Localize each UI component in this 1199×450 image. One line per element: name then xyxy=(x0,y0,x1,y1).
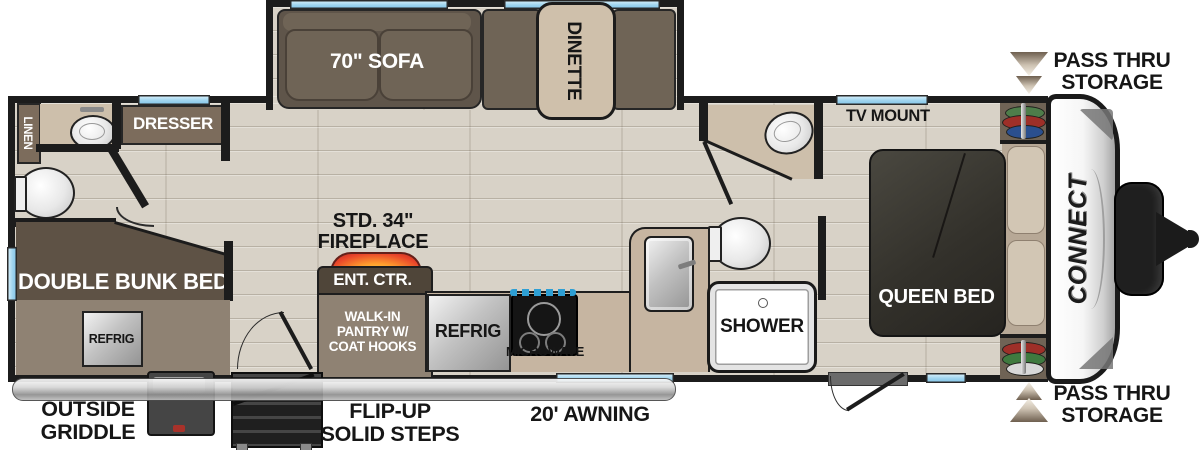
rear-wall-window xyxy=(7,247,17,301)
rear-bath-sink-bowl xyxy=(79,123,105,140)
hitch-coupler xyxy=(1188,230,1199,248)
pass-thru-storage-bottom-bay xyxy=(1000,334,1048,379)
linen-cabinet: LINEN xyxy=(17,103,41,164)
pass-thru-arrow-down-large xyxy=(1010,52,1048,76)
outside-griddle-line2: GRIDDLE xyxy=(41,420,136,444)
dresser-window xyxy=(138,95,210,105)
outside-griddle-line1: OUTSIDE xyxy=(41,397,134,421)
bath-sink-bowl xyxy=(771,117,804,145)
dresser-label: DRESSER xyxy=(123,115,223,133)
pass-thru-arrow-down-small xyxy=(1016,76,1042,94)
pantry-label-line1: WALK-IN xyxy=(345,309,401,324)
wall-rear-bath-vertical xyxy=(112,103,121,149)
flip-up-steps-label: FLIP-UP SOLID STEPS xyxy=(318,400,462,446)
bunk-refrig: REFRIG xyxy=(82,311,143,367)
ent-ctr-label: ENT. CTR. xyxy=(319,271,426,289)
dinette-table: DINETTE xyxy=(536,2,616,120)
bed-fold-line xyxy=(932,153,966,258)
linen-label: LINEN xyxy=(21,105,33,161)
cap-swoosh-bottom xyxy=(1079,337,1113,369)
pass-thru-top-line1: PASS THRU xyxy=(1053,49,1170,72)
pass-thru-bottom-label: PASS THRU STORAGE xyxy=(1048,383,1176,427)
floorplan-canvas: 70" SOFA DINETTE LINEN DRESSER DOUBLE BU… xyxy=(0,0,1199,450)
wall-bunkroom-right xyxy=(224,241,233,301)
pantry-label-line3: COAT HOOKS xyxy=(329,339,417,354)
storage-rod-top xyxy=(1021,103,1026,139)
tv-mount-label: TV MOUNT xyxy=(846,108,930,125)
dinette-label: DINETTE xyxy=(563,0,583,123)
wall-rear-bath-horizontal xyxy=(36,144,119,152)
fireplace-label-line1: STD. 34" xyxy=(333,210,413,232)
sofa-label: 70" SOFA xyxy=(297,51,457,73)
brand-logo: CONNECT xyxy=(1065,144,1095,334)
queen-bed-label: QUEEN BED xyxy=(871,287,1002,308)
pass-thru-bottom-line2: STORAGE xyxy=(1061,404,1162,427)
bed-pillow-bottom xyxy=(1007,240,1045,326)
storage-rod-bottom xyxy=(1021,340,1026,374)
cooktop-knobs xyxy=(510,289,576,296)
bunk-refrig-label: REFRIG xyxy=(84,333,139,346)
pass-thru-top-label: PASS THRU STORAGE xyxy=(1048,50,1176,94)
kitchen-sink xyxy=(644,236,694,312)
rear-bath-faucet-icon xyxy=(80,107,104,112)
microwave-label: MICROWAVE xyxy=(499,345,591,359)
pass-thru-storage-top-bay xyxy=(1000,103,1048,144)
fireplace-label: STD. 34" FIREPLACE xyxy=(312,211,434,253)
dresser: DRESSER xyxy=(121,105,227,145)
flip-up-steps-line1: FLIP-UP xyxy=(349,399,431,423)
kitchen-refrig: REFRIG xyxy=(427,294,511,372)
bunk-label: DOUBLE BUNK BED xyxy=(18,270,226,293)
pass-thru-arrow-up-large xyxy=(1010,398,1048,422)
bedroom-door-arc xyxy=(830,376,849,411)
wall-dresser-right xyxy=(221,103,230,161)
sofa: 70" SOFA xyxy=(277,9,482,109)
wall-bath-right xyxy=(814,103,823,179)
dinette-bench-left xyxy=(482,9,542,110)
steps-foot-left xyxy=(236,443,248,450)
awning-label: 20' AWNING xyxy=(520,403,660,426)
fireplace-label-line2: FIREPLACE xyxy=(318,231,429,253)
shower-drain xyxy=(758,298,768,308)
dinette-bench-right xyxy=(612,9,676,110)
queen-bed: QUEEN BED xyxy=(869,149,1006,337)
bed-headboard-area xyxy=(1002,136,1048,336)
cooktop-burner-large xyxy=(527,302,561,336)
pass-thru-bottom-line1: PASS THRU xyxy=(1053,382,1170,405)
walk-in-pantry: WALK-IN PANTRY W/ COAT HOOKS xyxy=(317,293,433,377)
pantry-label: WALK-IN PANTRY W/ COAT HOOKS xyxy=(319,309,426,354)
flip-up-steps-line2: SOLID STEPS xyxy=(321,422,460,446)
slideout-window-left xyxy=(290,0,448,9)
bedroom-top-window xyxy=(836,95,928,105)
shower: SHOWER xyxy=(707,281,817,373)
steps-foot-right xyxy=(300,443,312,450)
cap-swoosh-top xyxy=(1079,109,1113,141)
outside-griddle-label: OUTSIDE GRIDDLE xyxy=(20,398,156,444)
kitchen-refrig-label: REFRIG xyxy=(429,322,507,341)
bath-toilet-tank xyxy=(708,226,722,262)
wall-bath-left xyxy=(699,103,708,141)
shower-label: SHOWER xyxy=(710,317,814,337)
bedroom-bottom-window xyxy=(926,373,966,383)
griddle-knob xyxy=(173,425,185,432)
rear-toilet-tank xyxy=(14,176,27,212)
wall-bedroom-divider xyxy=(818,216,826,300)
pass-thru-top-line2: STORAGE xyxy=(1061,71,1162,94)
pass-thru-arrow-up-small xyxy=(1016,382,1042,400)
pantry-label-line2: PANTRY W/ xyxy=(337,324,408,339)
bed-pillow-top xyxy=(1007,146,1045,234)
